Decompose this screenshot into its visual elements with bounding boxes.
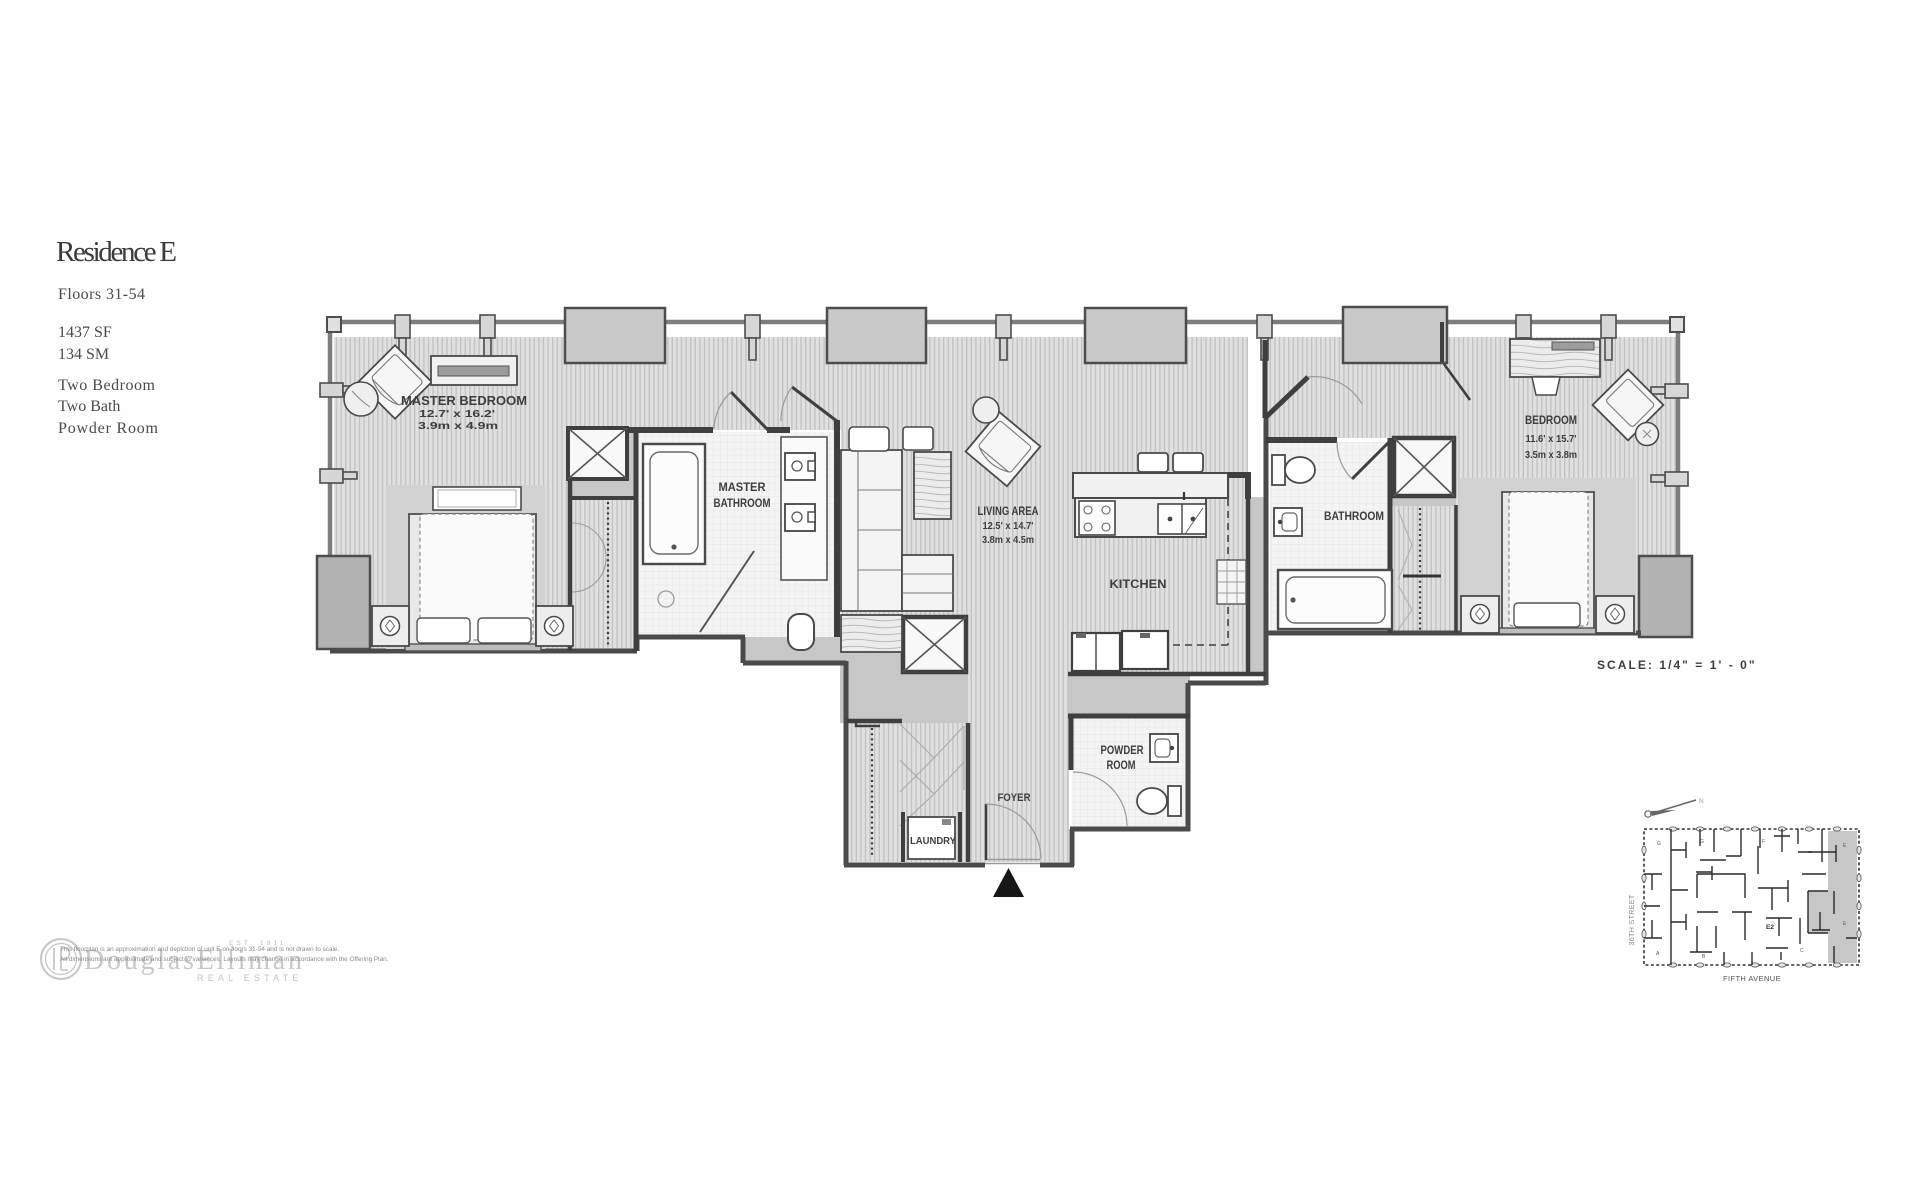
svg-text:MASTER BEDROOM: MASTER BEDROOM [401, 394, 527, 408]
svg-text:POWDER: POWDER [1101, 743, 1144, 757]
svg-text:MASTER: MASTER [719, 480, 766, 494]
svg-text:11.6' x 15.7': 11.6' x 15.7' [1526, 434, 1577, 445]
svg-text:This floorplan is an approxima: This floorplan is an approximation and d… [60, 946, 339, 953]
svg-text:3.8m x 4.5m: 3.8m x 4.5m [982, 535, 1034, 546]
svg-text:LIVING AREA: LIVING AREA [978, 504, 1039, 518]
svg-text:E2: E2 [1766, 924, 1774, 931]
svg-text:12.5' x 14.7': 12.5' x 14.7' [983, 521, 1034, 532]
svg-text:F: F [1762, 839, 1765, 845]
svg-text:G: G [1657, 841, 1661, 847]
svg-text:BEDROOM: BEDROOM [1525, 413, 1577, 427]
svg-text:C: C [1800, 948, 1804, 954]
svg-text:REAL ESTATE: REAL ESTATE [197, 973, 303, 983]
svg-text:All dimensions are approximate: All dimensions are approximate and subje… [60, 956, 389, 963]
svg-text:12.7' x 16.2': 12.7' x 16.2' [419, 408, 495, 420]
svg-text:BATHROOM: BATHROOM [1324, 509, 1384, 523]
svg-text:BATHROOM: BATHROOM [714, 496, 771, 510]
svg-text:Residence E: Residence E [56, 236, 177, 268]
svg-text:LAUNDRY: LAUNDRY [910, 836, 956, 847]
svg-text:Two Bedroom: Two Bedroom [58, 377, 156, 394]
svg-text:G: G [1700, 839, 1704, 845]
svg-text:FOYER: FOYER [998, 792, 1031, 804]
svg-text:Two Bath: Two Bath [58, 398, 120, 415]
svg-text:FIFTH AVENUE: FIFTH AVENUE [1723, 974, 1781, 983]
svg-text:Floors 31-54: Floors 31-54 [58, 286, 145, 303]
svg-text:3.9m x 4.9m: 3.9m x 4.9m [418, 420, 498, 432]
svg-text:134 SM: 134 SM [58, 346, 109, 363]
svg-text:ROOM: ROOM [1107, 758, 1136, 772]
svg-text:36TH STREET: 36TH STREET [1629, 894, 1636, 945]
svg-text:Powder Room: Powder Room [58, 420, 159, 437]
svg-text:SCALE: 1/4" = 1' - 0": SCALE: 1/4" = 1' - 0" [1597, 658, 1755, 672]
svg-text:3.5m x 3.8m: 3.5m x 3.8m [1525, 450, 1577, 461]
svg-text:KITCHEN: KITCHEN [1110, 577, 1167, 591]
svg-text:N: N [1699, 798, 1704, 805]
svg-text:1437 SF: 1437 SF [58, 324, 112, 341]
